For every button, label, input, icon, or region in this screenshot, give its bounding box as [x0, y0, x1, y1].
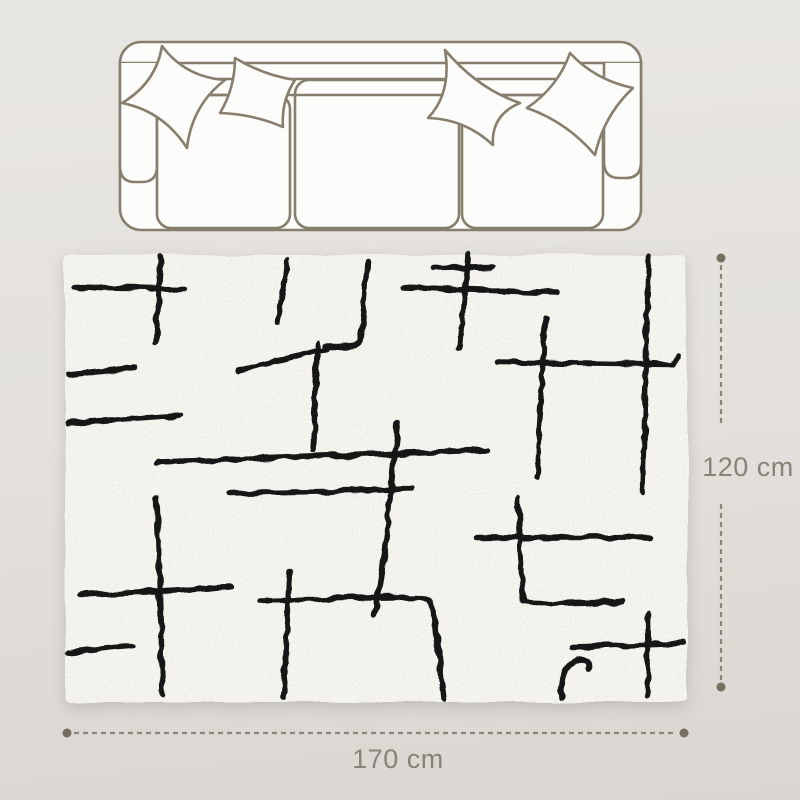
product-dimension-diagram: 120 cm 170 cm — [0, 0, 800, 800]
width-dimension-end-dot — [680, 729, 689, 738]
sofa-cushion-middle — [295, 80, 459, 228]
width-dimension-label: 170 cm — [328, 744, 468, 775]
height-dimension-label: 120 cm — [702, 452, 794, 483]
sofa-illustration — [118, 39, 644, 233]
height-dimension-end-dot — [717, 683, 726, 692]
width-dimension-start-dot — [63, 729, 72, 738]
rug-illustration — [60, 250, 692, 708]
height-dimension-start-dot — [717, 254, 726, 263]
width-dimension-line — [60, 726, 692, 740]
